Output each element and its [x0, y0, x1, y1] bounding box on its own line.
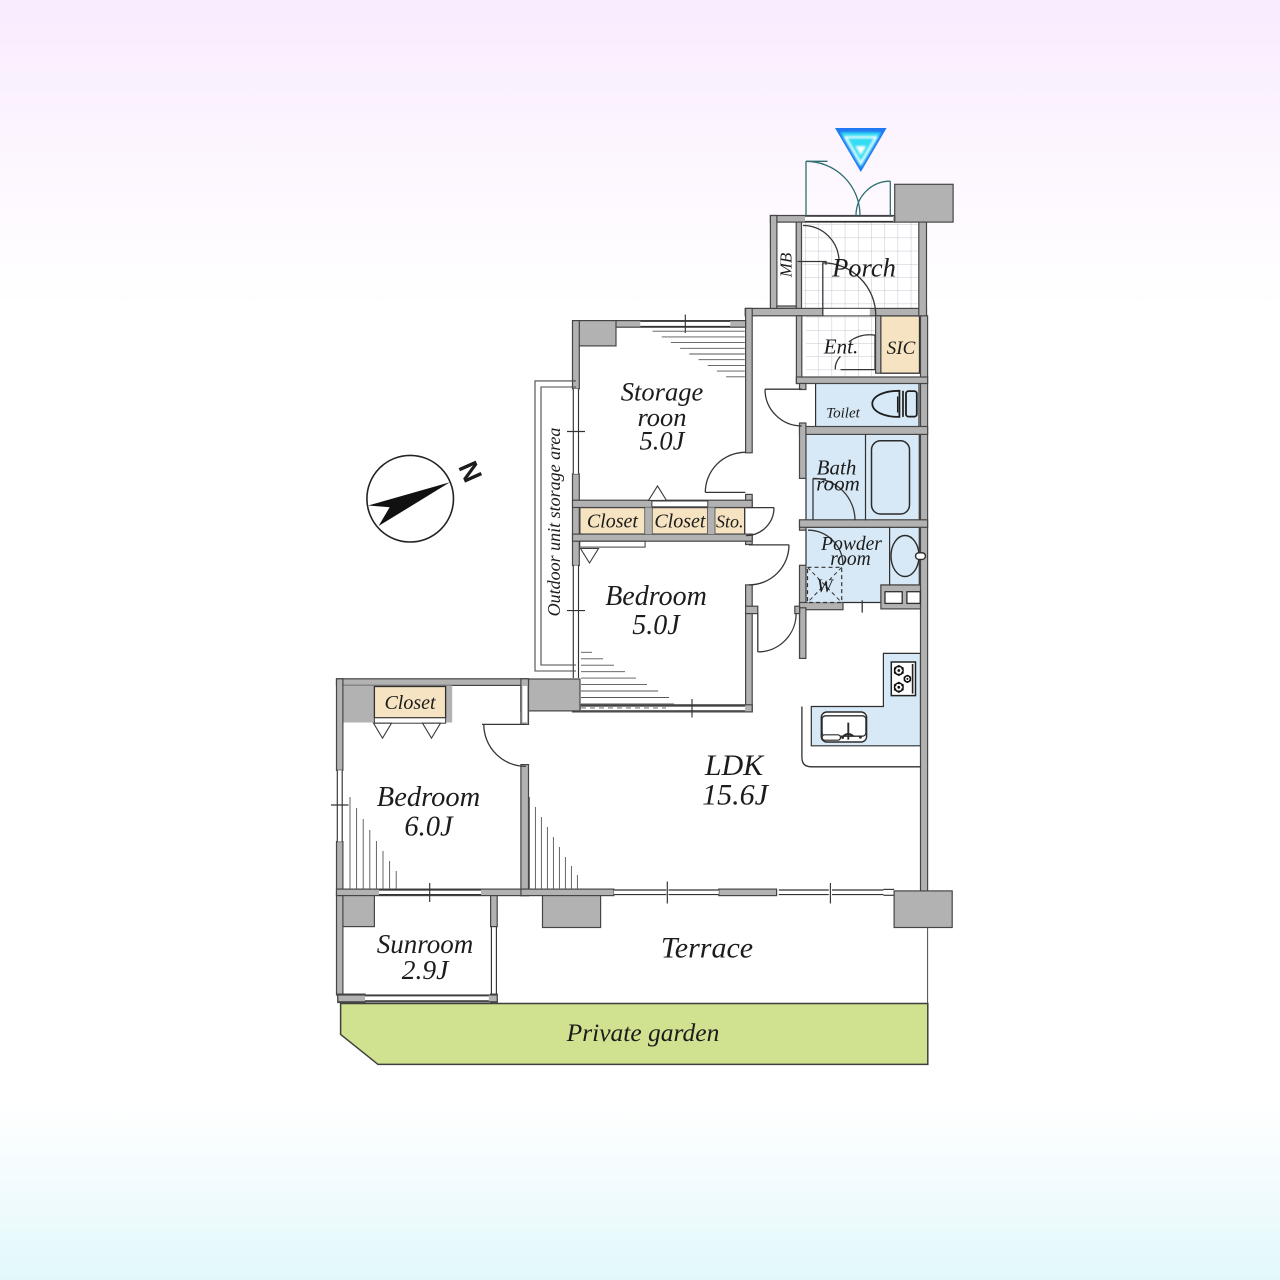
svg-text:LDK: LDK	[704, 749, 765, 782]
svg-text:room: room	[830, 549, 870, 570]
svg-text:5.0J: 5.0J	[640, 426, 686, 456]
svg-text:Ent.: Ent.	[823, 335, 858, 359]
svg-text:Terrace: Terrace	[661, 932, 753, 965]
svg-text:Bedroom: Bedroom	[377, 782, 480, 813]
svg-text:Sto.: Sto.	[716, 512, 744, 532]
svg-text:2.9J: 2.9J	[402, 954, 450, 985]
svg-text:Closet: Closet	[384, 692, 436, 714]
svg-text:5.0J: 5.0J	[632, 610, 681, 641]
svg-text:6.0J: 6.0J	[404, 812, 454, 843]
svg-text:15.6J: 15.6J	[702, 779, 770, 812]
svg-text:Outdoor unit storage area: Outdoor unit storage area	[544, 428, 564, 617]
svg-text:MB: MB	[777, 252, 796, 278]
svg-text:Closet: Closet	[587, 511, 639, 533]
svg-text:W: W	[817, 576, 835, 597]
svg-text:Private garden: Private garden	[566, 1018, 720, 1047]
svg-text:N: N	[452, 457, 487, 487]
svg-text:SIC: SIC	[887, 338, 916, 359]
svg-text:Toilet: Toilet	[826, 406, 860, 422]
svg-text:room: room	[816, 472, 860, 496]
svg-text:Closet: Closet	[654, 511, 706, 533]
svg-text:Porch: Porch	[831, 253, 896, 283]
svg-text:Bedroom: Bedroom	[605, 581, 707, 612]
